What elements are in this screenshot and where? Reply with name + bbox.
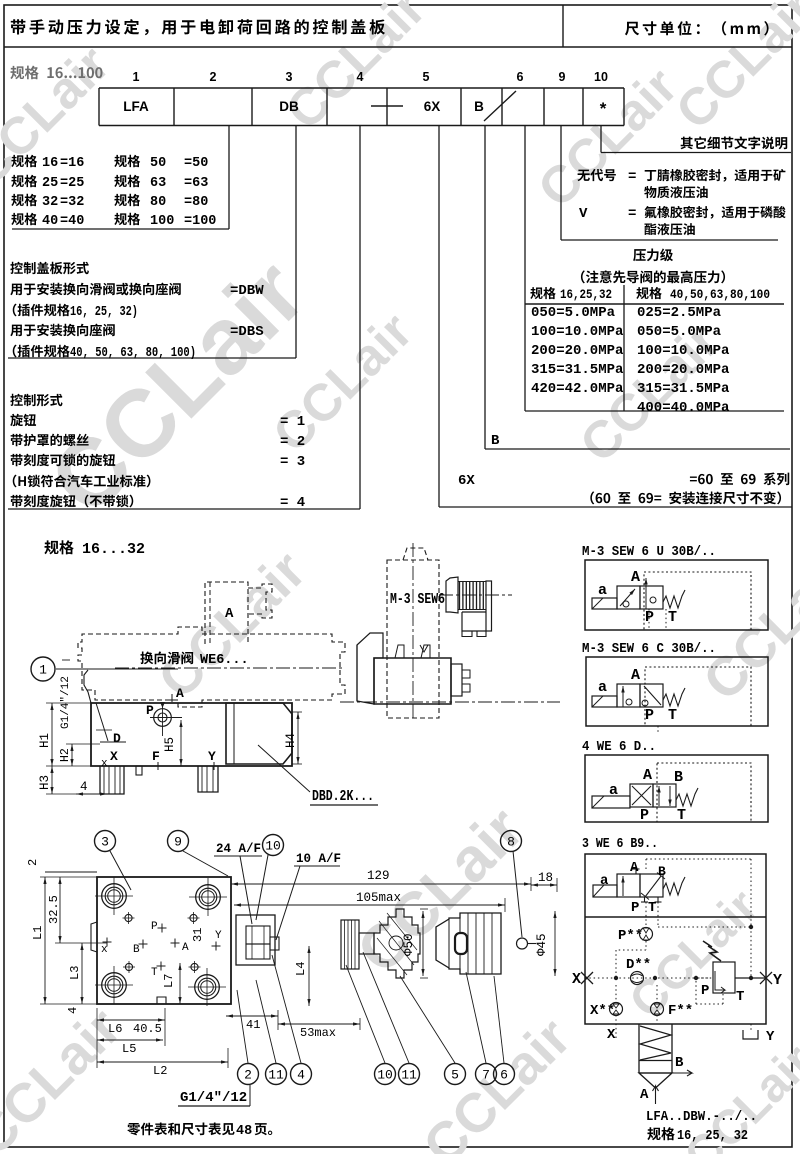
svg-text:F**: F** xyxy=(668,1003,693,1019)
svg-text:6: 6 xyxy=(517,70,524,84)
svg-text:80: 80 xyxy=(150,195,166,210)
svg-text:=63: =63 xyxy=(184,176,208,191)
svg-text:a: a xyxy=(598,582,607,599)
svg-text:100=10.0MPa: 100=10.0MPa xyxy=(637,343,730,359)
svg-text:X: X xyxy=(607,1027,616,1043)
svg-text:16, 25, 32): 16, 25, 32) xyxy=(70,305,138,320)
svg-text:100=10.0MPa: 100=10.0MPa xyxy=(531,324,624,340)
svg-text:T: T xyxy=(648,900,656,916)
svg-text:=32: =32 xyxy=(60,195,84,210)
svg-text:P: P xyxy=(645,707,654,724)
svg-text:31: 31 xyxy=(191,928,205,942)
svg-text:2: 2 xyxy=(244,1068,252,1083)
svg-text:420=42.0MPa: 420=42.0MPa xyxy=(531,381,624,397)
svg-text:a: a xyxy=(600,873,609,889)
svg-text:CCLair: CCLair xyxy=(665,0,800,141)
svg-text:A: A xyxy=(176,686,184,701)
svg-text:050=5.0MPa: 050=5.0MPa xyxy=(637,324,722,340)
svg-text:2: 2 xyxy=(26,859,40,866)
svg-text:16...32: 16...32 xyxy=(82,541,145,558)
svg-text:4: 4 xyxy=(66,1007,80,1014)
svg-text:F: F xyxy=(152,749,160,764)
svg-text:L4: L4 xyxy=(294,962,308,976)
svg-text:A: A xyxy=(225,606,234,622)
svg-text:L7: L7 xyxy=(162,974,176,988)
svg-text:V: V xyxy=(579,206,588,222)
svg-text:6X: 6X xyxy=(424,99,441,114)
svg-text:3 WE 6 B9..: 3 WE 6 B9.. xyxy=(582,836,658,852)
svg-text:X**: X** xyxy=(590,1003,615,1019)
svg-text:=100: =100 xyxy=(184,214,216,229)
svg-text:1: 1 xyxy=(133,70,140,84)
svg-text:10: 10 xyxy=(594,70,608,84)
svg-text:53max: 53max xyxy=(300,1026,336,1040)
svg-text:Y: Y xyxy=(208,749,216,764)
svg-text:T: T xyxy=(668,609,677,626)
svg-text:A: A xyxy=(631,667,640,684)
svg-text:H3: H3 xyxy=(38,775,52,790)
svg-text:T: T xyxy=(668,707,677,724)
svg-text:63: 63 xyxy=(150,176,166,191)
svg-text:B: B xyxy=(491,433,500,449)
svg-text:40, 50, 63, 80, 100): 40, 50, 63, 80, 100) xyxy=(70,346,196,361)
svg-text:100: 100 xyxy=(150,214,174,229)
svg-text:A: A xyxy=(631,569,640,586)
svg-text:200=20.0MPa: 200=20.0MPa xyxy=(637,362,730,378)
svg-text:5: 5 xyxy=(423,70,430,84)
svg-text:32: 32 xyxy=(42,195,58,210)
svg-text:=25: =25 xyxy=(60,176,84,191)
svg-text:DB: DB xyxy=(279,99,299,114)
svg-text:24 A/F: 24 A/F xyxy=(216,842,261,856)
svg-text:32.5: 32.5 xyxy=(47,895,61,924)
svg-text:*: * xyxy=(600,99,607,118)
svg-text:x: x xyxy=(101,758,108,770)
svg-text:P: P xyxy=(146,703,154,718)
svg-text:41: 41 xyxy=(246,1018,260,1032)
svg-text:CCLair: CCLair xyxy=(691,541,800,712)
svg-text:105max: 105max xyxy=(356,891,401,905)
svg-text:10 A/F: 10 A/F xyxy=(296,852,341,866)
svg-text:A: A xyxy=(640,1087,649,1103)
svg-text:X: X xyxy=(110,749,118,764)
svg-text:L6: L6 xyxy=(108,1022,122,1036)
svg-text:=: = xyxy=(628,169,636,185)
svg-text:50: 50 xyxy=(150,156,166,171)
svg-text:X: X xyxy=(572,971,581,988)
svg-text:H2: H2 xyxy=(59,748,72,762)
svg-text:G1/4"/12: G1/4"/12 xyxy=(180,1090,247,1106)
svg-text:B: B xyxy=(674,769,683,786)
svg-text:= 2: = 2 xyxy=(280,434,305,450)
svg-text:050=5.0MPa: 050=5.0MPa xyxy=(531,305,616,321)
svg-text:a: a xyxy=(598,679,607,696)
svg-text:H4: H4 xyxy=(284,733,298,748)
svg-text:=DBW: =DBW xyxy=(230,283,264,299)
svg-text:M-3 SEW6: M-3 SEW6 xyxy=(390,592,445,608)
svg-text:B: B xyxy=(658,864,666,879)
svg-text:4: 4 xyxy=(297,1068,305,1083)
svg-text:=DBS: =DBS xyxy=(230,324,264,340)
svg-text:16,25,32: 16,25,32 xyxy=(560,287,612,302)
svg-text:=50: =50 xyxy=(184,156,208,171)
svg-text:18: 18 xyxy=(538,871,553,885)
svg-text:4: 4 xyxy=(80,780,88,794)
svg-text:A: A xyxy=(182,942,189,954)
svg-text:L5: L5 xyxy=(122,1042,136,1056)
svg-text:P: P xyxy=(640,807,649,824)
svg-text:400=40.0MPa: 400=40.0MPa xyxy=(637,400,730,416)
svg-text:CCLair: CCLair xyxy=(146,539,317,710)
svg-text:40: 40 xyxy=(42,214,58,229)
svg-text:11: 11 xyxy=(401,1068,417,1083)
svg-text:315=31.5MPa: 315=31.5MPa xyxy=(531,362,624,378)
svg-text:3: 3 xyxy=(286,70,293,84)
svg-text:H5: H5 xyxy=(163,737,177,752)
svg-text:=16: =16 xyxy=(60,156,84,171)
svg-text:= 3: = 3 xyxy=(280,454,305,470)
svg-text:Φ45: Φ45 xyxy=(535,933,549,956)
svg-text:Φ50: Φ50 xyxy=(402,933,416,956)
svg-text:10: 10 xyxy=(265,839,281,854)
svg-text:25: 25 xyxy=(42,176,58,191)
svg-text:=80: =80 xyxy=(184,195,208,210)
svg-text:LFA: LFA xyxy=(123,99,149,114)
svg-text:D**: D** xyxy=(626,957,651,973)
svg-text:1: 1 xyxy=(39,663,47,678)
svg-text:L1: L1 xyxy=(31,926,45,940)
svg-text:L3: L3 xyxy=(68,966,82,980)
svg-text:10: 10 xyxy=(377,1068,393,1083)
svg-text:129: 129 xyxy=(367,869,390,883)
svg-text:CCLair: CCLair xyxy=(0,35,121,197)
svg-text:16: 16 xyxy=(42,156,58,171)
svg-text:025=2.5MPa: 025=2.5MPa xyxy=(637,305,722,321)
svg-text:D: D xyxy=(113,731,121,746)
svg-text:B: B xyxy=(474,99,484,114)
svg-text:B: B xyxy=(675,1055,684,1071)
svg-text:Y: Y xyxy=(766,1029,775,1045)
svg-text:P: P xyxy=(701,983,709,999)
svg-text:3: 3 xyxy=(101,835,109,850)
svg-text:6: 6 xyxy=(500,1068,508,1083)
svg-text:L2: L2 xyxy=(153,1064,167,1078)
svg-text:G1/4"/12: G1/4"/12 xyxy=(60,676,72,729)
svg-text:P: P xyxy=(645,609,654,626)
svg-text:=: = xyxy=(628,206,636,222)
svg-text:200=20.0MPa: 200=20.0MPa xyxy=(531,343,624,359)
svg-text:T: T xyxy=(151,967,158,979)
svg-text:6X: 6X xyxy=(458,473,475,489)
svg-text:= 4: = 4 xyxy=(280,495,305,511)
svg-text:T: T xyxy=(736,989,744,1005)
svg-text:T: T xyxy=(677,807,686,824)
svg-text:B: B xyxy=(133,944,140,956)
svg-text:4: 4 xyxy=(357,70,364,84)
svg-text:a: a xyxy=(609,782,618,799)
svg-text:= 1: = 1 xyxy=(280,414,305,430)
svg-text:8: 8 xyxy=(507,835,515,850)
svg-text:7: 7 xyxy=(482,1068,490,1083)
svg-text:=40: =40 xyxy=(60,214,84,229)
svg-text:315=31.5MPa: 315=31.5MPa xyxy=(637,381,730,397)
svg-text:16, 25, 32: 16, 25, 32 xyxy=(677,1129,748,1144)
svg-text:A: A xyxy=(643,767,652,784)
svg-text:40,50,63,80,100: 40,50,63,80,100 xyxy=(670,287,770,302)
svg-text:H1: H1 xyxy=(38,733,52,748)
svg-text:WE6...: WE6... xyxy=(200,653,249,668)
svg-text:40.5: 40.5 xyxy=(133,1022,162,1036)
svg-text:9: 9 xyxy=(559,70,566,84)
svg-text:11: 11 xyxy=(268,1068,284,1083)
svg-text:M-3 SEW 6 U 30B/..: M-3 SEW 6 U 30B/.. xyxy=(582,544,716,560)
svg-text:DBD.2K...: DBD.2K... xyxy=(312,789,374,805)
svg-text:Y: Y xyxy=(215,930,222,942)
svg-text:CCLair: CCLair xyxy=(411,1006,582,1154)
svg-text:P: P xyxy=(151,921,158,933)
svg-text:5: 5 xyxy=(451,1068,459,1083)
svg-text:LFA..DBW.-../..: LFA..DBW.-../.. xyxy=(646,1110,757,1125)
svg-text:M-3 SEW 6 C 30B/..: M-3 SEW 6 C 30B/.. xyxy=(582,641,716,657)
svg-text:9: 9 xyxy=(174,835,182,850)
svg-text:A: A xyxy=(630,860,639,876)
svg-text:4 WE 6 D..: 4 WE 6 D.. xyxy=(582,739,656,755)
svg-text:Y: Y xyxy=(773,972,782,989)
svg-text:48: 48 xyxy=(236,1124,252,1139)
svg-text:2: 2 xyxy=(210,70,217,84)
svg-text:P: P xyxy=(631,900,639,916)
